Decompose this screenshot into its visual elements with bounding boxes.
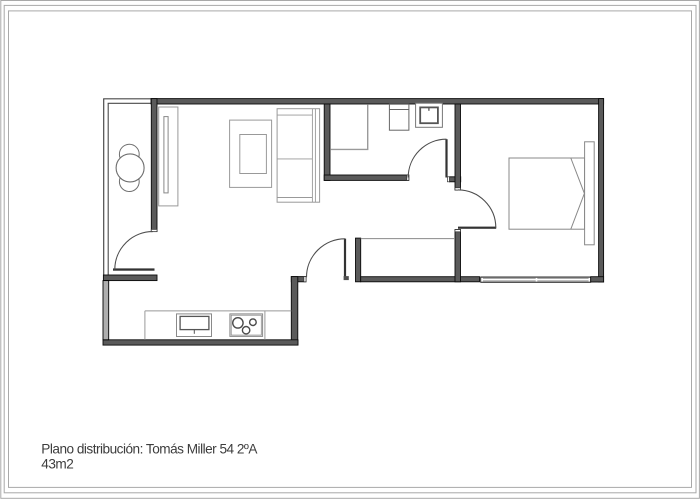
svg-text:Plano distribución: Tomás Mill: Plano distribución: Tomás Miller 54 2ºA bbox=[41, 442, 258, 457]
svg-text:43m2: 43m2 bbox=[41, 456, 73, 471]
